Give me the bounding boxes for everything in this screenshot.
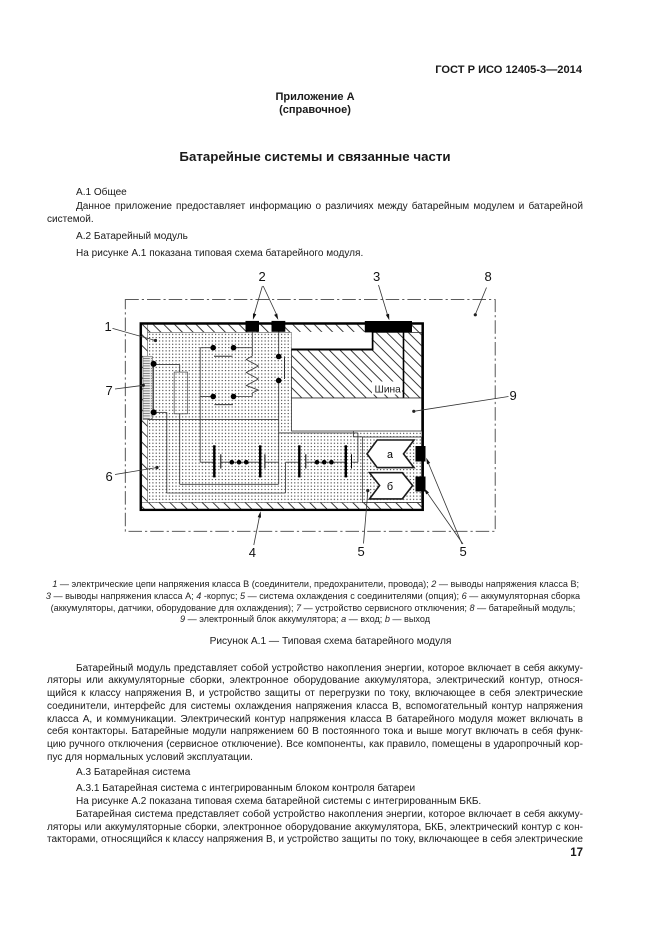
svg-text:5: 5 [460,544,467,559]
svg-text:б: б [387,481,393,493]
svg-text:4: 4 [249,545,256,560]
svg-text:5: 5 [358,544,365,559]
svg-text:1: 1 [105,319,112,334]
svg-text:6: 6 [106,469,113,484]
svg-text:а: а [387,449,393,461]
svg-text:8: 8 [485,269,492,284]
svg-text:3: 3 [373,269,380,284]
svg-text:2: 2 [259,269,266,284]
svg-text:9: 9 [510,388,517,403]
svg-text:7: 7 [106,383,113,398]
svg-text:Шина: Шина [375,384,402,395]
